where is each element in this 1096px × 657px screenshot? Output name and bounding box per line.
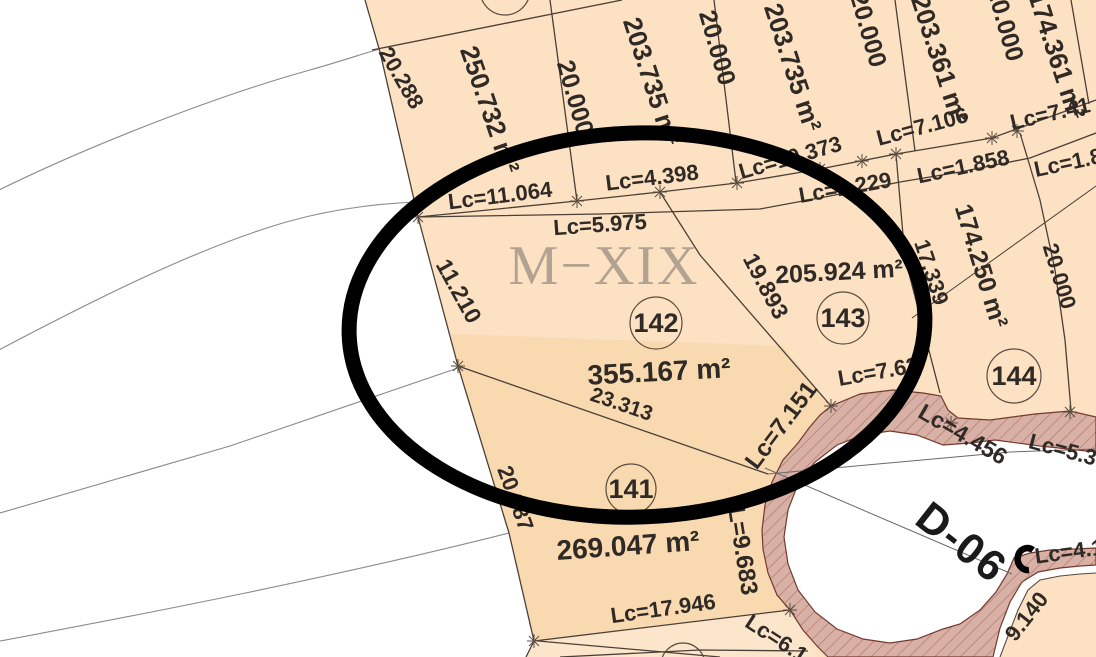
svg-text:M−XIX: M−XIX: [509, 235, 700, 297]
svg-text:141: 141: [608, 474, 653, 504]
svg-text:144: 144: [991, 361, 1036, 391]
svg-text:142: 142: [633, 308, 678, 338]
svg-text:143: 143: [820, 303, 865, 333]
